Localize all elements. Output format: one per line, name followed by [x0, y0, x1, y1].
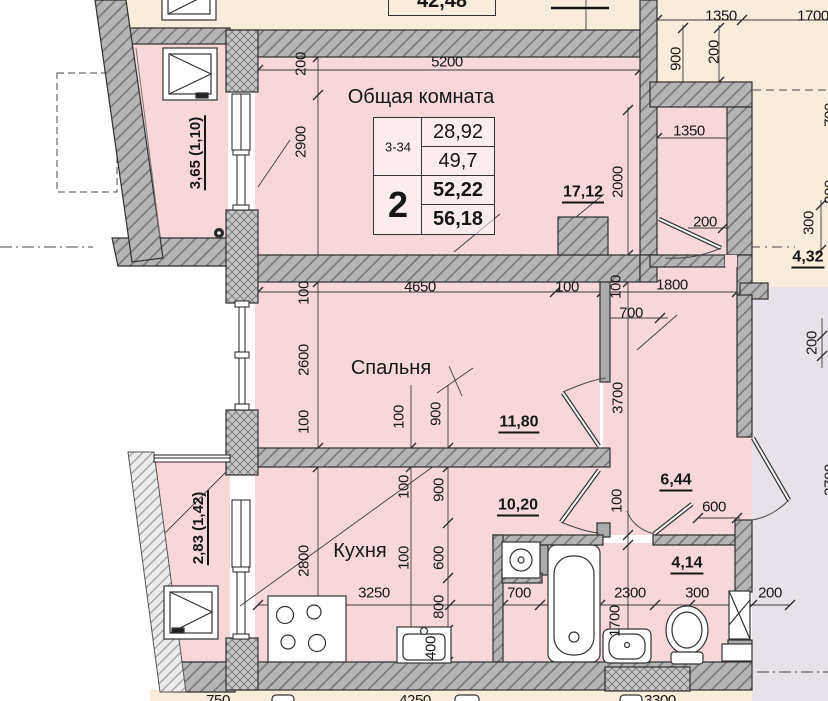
- dim-label: 2900: [294, 126, 309, 158]
- dim-label: 1800: [656, 278, 688, 293]
- neighbor-area-value: 42,48: [417, 0, 467, 13]
- dim-label: 200: [693, 215, 717, 230]
- cut-fixture: [620, 695, 642, 701]
- bedroom-label: Спальня: [351, 358, 431, 378]
- dim-label: 3700: [611, 382, 626, 414]
- dim-label: 100: [609, 275, 624, 299]
- dim-label: 100: [297, 281, 312, 305]
- dim-label: 100: [397, 546, 412, 570]
- dim-label: 600: [432, 546, 447, 570]
- area-value: 56,18: [433, 209, 483, 229]
- bedroom-window: [235, 301, 249, 410]
- dim-label: 100: [392, 405, 407, 429]
- toilet-icon: [666, 606, 708, 664]
- dim-label: 700: [507, 586, 531, 601]
- dim-label: 3300: [644, 693, 676, 701]
- dim-label: 300: [685, 586, 709, 601]
- dim-label: 400: [424, 636, 439, 660]
- window-shaft-icon: [163, 48, 217, 100]
- table-divider: [421, 204, 494, 205]
- bathtub-icon: [548, 545, 600, 662]
- floor-plan: Общая комната Спальня Кухня 17,12 11,80 …: [0, 0, 828, 701]
- dim-label: 2800: [297, 545, 312, 577]
- dim-label: 300: [802, 211, 817, 235]
- dim-label: 2600: [297, 344, 312, 376]
- window-shaft-icon: [164, 586, 218, 639]
- washing-machine-icon: [502, 542, 540, 578]
- loggia-top-area: 3,65 (1,10): [188, 116, 206, 191]
- area-value: 28,92: [433, 122, 483, 142]
- dim-label: 4650: [404, 280, 436, 295]
- dim-label: 700: [823, 103, 828, 127]
- dim-label: 900: [669, 47, 684, 71]
- loggia-window: [232, 94, 250, 210]
- room-count: 2: [388, 187, 408, 223]
- bathroom-area: 4,14: [670, 556, 703, 575]
- dim-label: 3250: [358, 586, 390, 601]
- dim-label: 100: [555, 280, 579, 295]
- dim-label: 100: [397, 475, 412, 499]
- dim-label: 2000: [611, 166, 626, 198]
- cut-fixture: [455, 695, 479, 701]
- dim-label: 600: [702, 500, 726, 515]
- loggia-bottom-area: 2,83 (1,42): [191, 491, 209, 566]
- dim-label: 3700: [823, 464, 828, 496]
- dim-label: 1700: [608, 605, 623, 637]
- dim-label: 800: [432, 595, 447, 619]
- dim-label: 200: [805, 331, 820, 355]
- dim-label: 200: [758, 586, 782, 601]
- kitchen-balcony-window: [232, 500, 250, 639]
- living-room-label: Общая комната: [348, 87, 495, 107]
- bedroom-area: 11,80: [498, 415, 539, 434]
- dim-label: 750: [206, 693, 230, 701]
- dim-label: 200: [294, 52, 309, 76]
- dim-label: 1350: [705, 9, 737, 24]
- table-divider: [374, 175, 494, 176]
- window-shaft-icon: [162, 0, 216, 20]
- dim-label: 200: [707, 40, 722, 64]
- apartment-info-table: 3-34 2 28,92 49,7 52,22 56,18: [373, 117, 495, 235]
- unit-code: 3-34: [385, 141, 411, 154]
- dim-label: 100: [610, 489, 625, 513]
- dim-label: 1700: [797, 9, 828, 24]
- living-area: 17,12: [562, 185, 604, 204]
- dim-label: 700: [619, 306, 643, 321]
- dim-label: 900: [432, 478, 447, 502]
- area-value: 52,22: [433, 180, 483, 200]
- table-divider: [421, 146, 494, 147]
- dim-label: 100: [297, 410, 312, 434]
- kitchen-label: Кухня: [333, 541, 387, 561]
- dim-label: 5200: [431, 55, 463, 70]
- corridor-area: 4,32: [791, 250, 824, 269]
- dim-label: 1350: [673, 124, 705, 139]
- dim-label: 2300: [614, 586, 646, 601]
- dim-label: 800: [823, 180, 828, 204]
- area-value: 49,7: [439, 151, 478, 171]
- neighbor-area-box: 42,48: [388, 0, 496, 16]
- stove-icon: [268, 596, 346, 662]
- hall-area: 6,44: [659, 473, 692, 492]
- cut-fixture: [272, 695, 294, 701]
- dim-label: 900: [429, 402, 444, 426]
- kitchen-area: 10,20: [497, 498, 539, 517]
- balcony-glazing: [154, 455, 230, 462]
- dim-label: 4250: [399, 693, 431, 701]
